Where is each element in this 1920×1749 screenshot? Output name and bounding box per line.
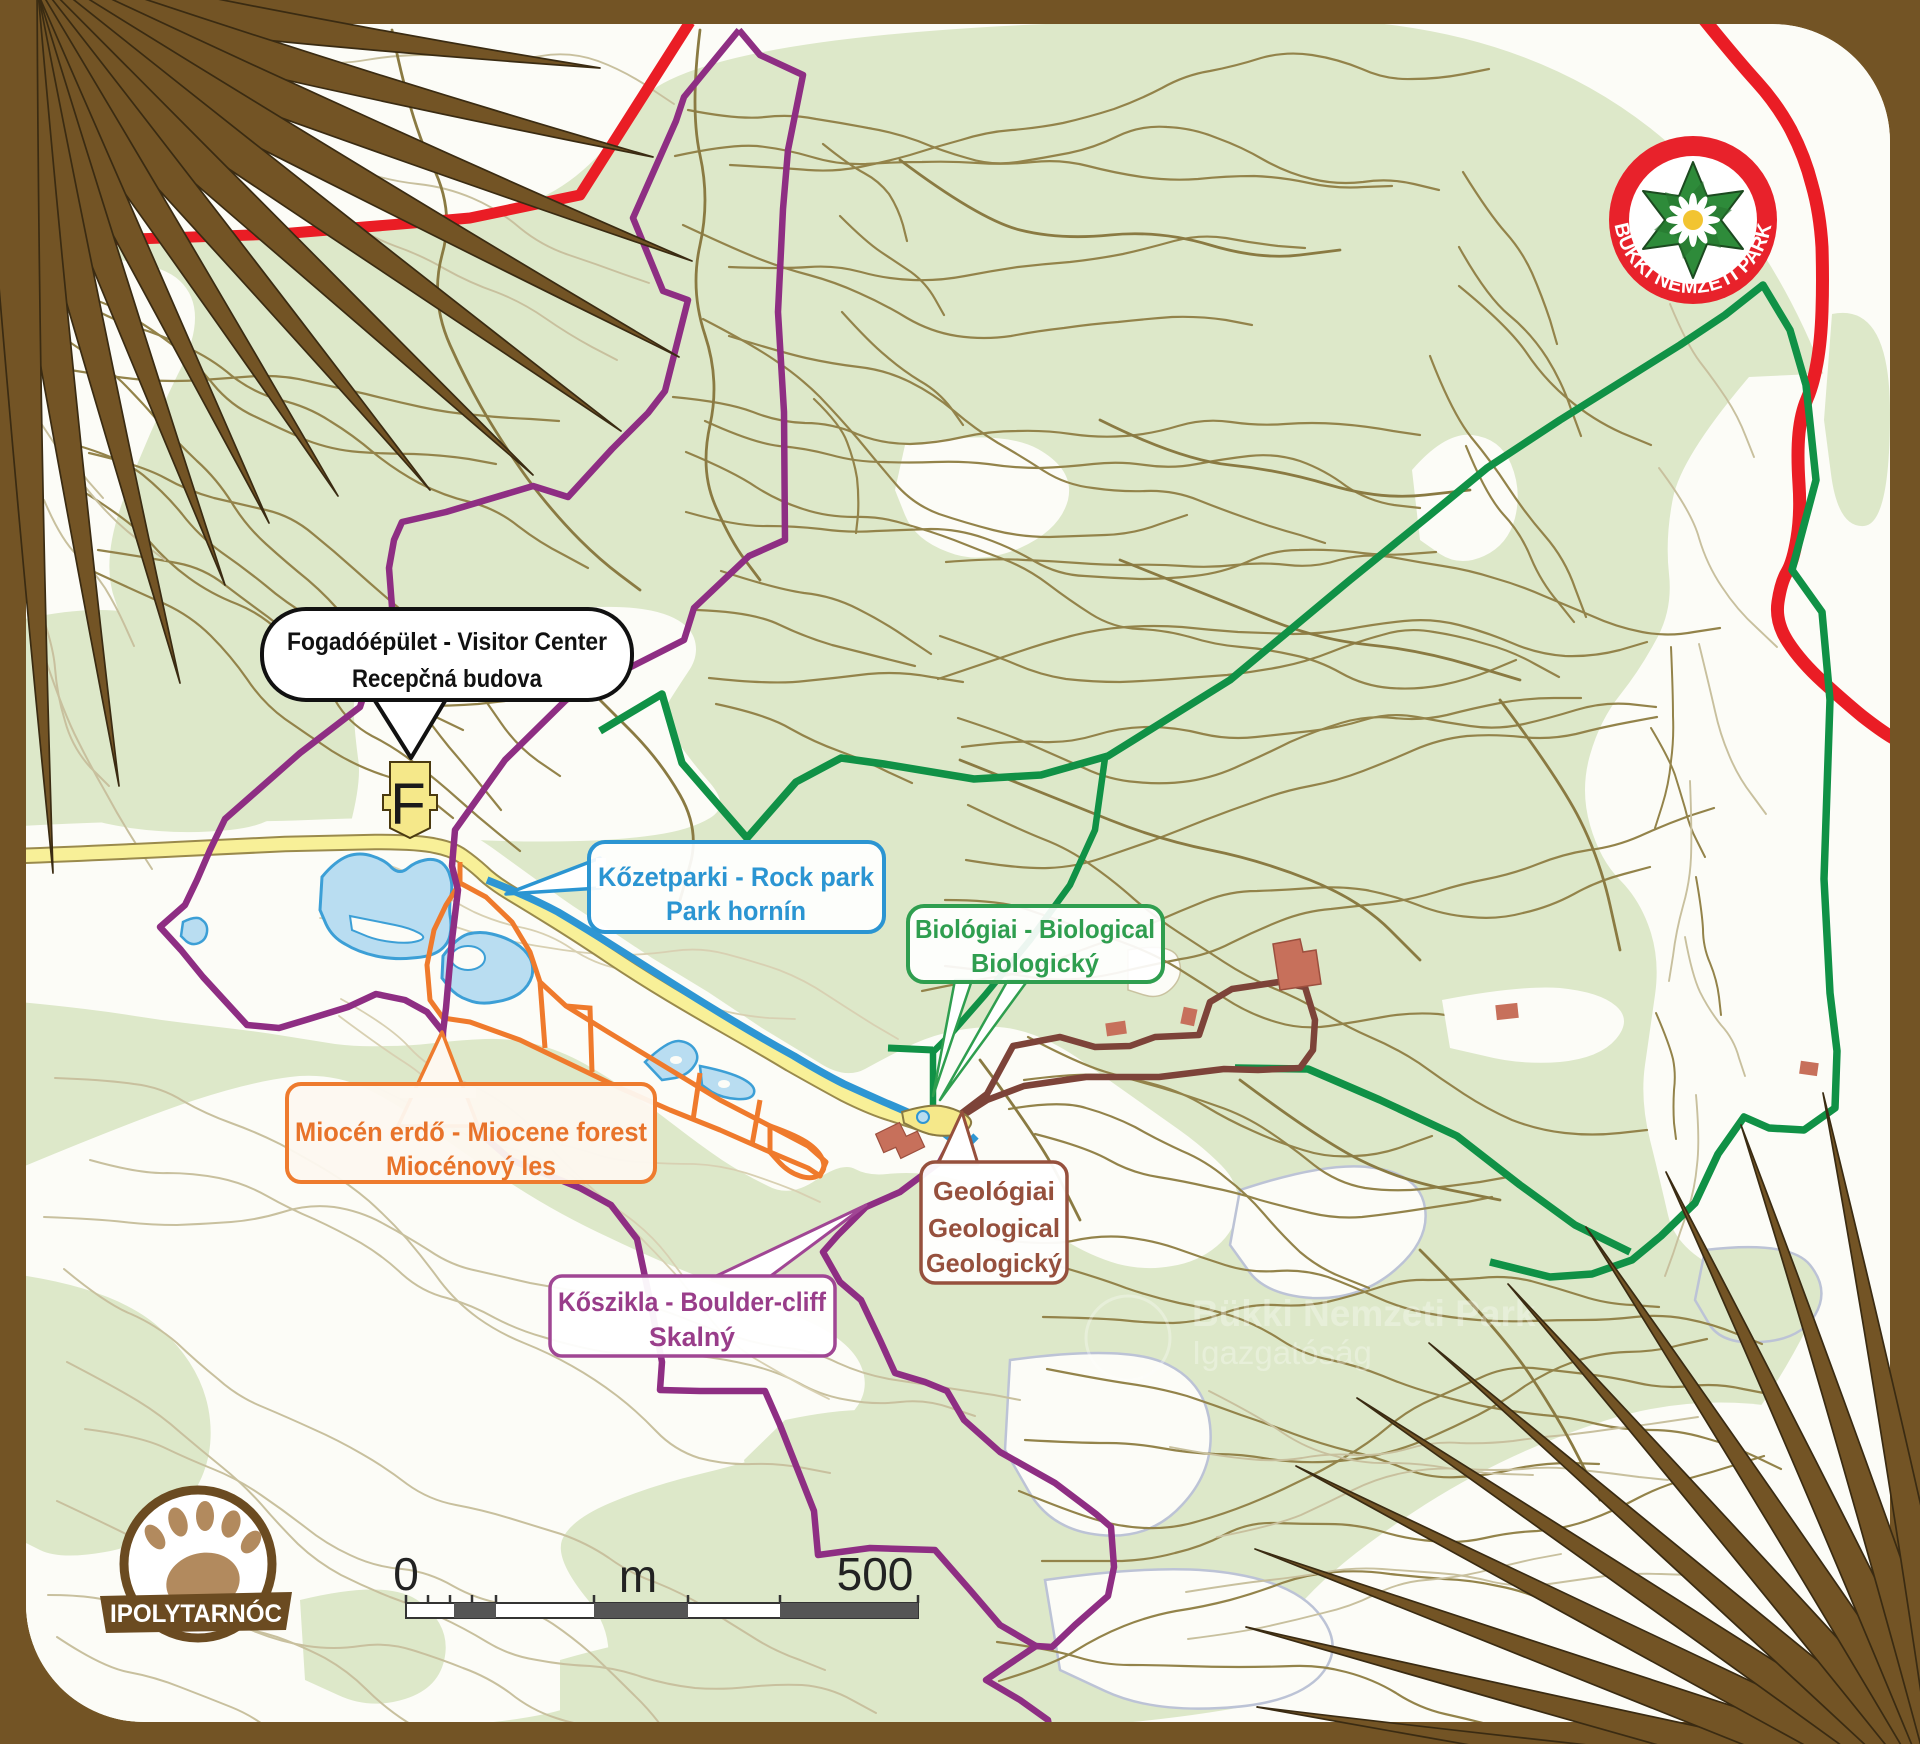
svg-text:Kőszikla - Boulder-cliff: Kőszikla - Boulder-cliff <box>558 1287 827 1317</box>
svg-text:Geologický: Geologický <box>926 1248 1063 1278</box>
svg-text:Bükki Nemzeti Park: Bükki Nemzeti Park <box>1192 1293 1536 1334</box>
svg-text:Fogadóépület - Visitor Center: Fogadóépület - Visitor Center <box>287 628 607 656</box>
svg-text:Miocén erdő - Miocene forest: Miocén erdő - Miocene forest <box>295 1117 647 1147</box>
svg-text:Kőzetparki - Rock park: Kőzetparki - Rock park <box>598 862 875 892</box>
svg-text:500: 500 <box>837 1548 914 1600</box>
svg-text:Skalný: Skalný <box>649 1322 735 1352</box>
svg-text:Park hornín: Park hornín <box>666 896 806 926</box>
svg-text:Miocénový les: Miocénový les <box>386 1151 556 1181</box>
svg-text:Igazgatóság: Igazgatóság <box>1192 1334 1372 1371</box>
svg-text:Biologický: Biologický <box>971 948 1100 978</box>
svg-text:m: m <box>619 1550 657 1602</box>
svg-text:Geological: Geological <box>928 1213 1060 1243</box>
svg-text:Geológiai: Geológiai <box>933 1176 1055 1206</box>
svg-text:0: 0 <box>393 1548 419 1600</box>
svg-text:Recepčná budova: Recepčná budova <box>352 665 543 693</box>
svg-text:F: F <box>390 772 425 837</box>
svg-text:Biológiai - Biological: Biológiai - Biological <box>915 914 1155 944</box>
svg-text:IPOLYTARNÓC: IPOLYTARNÓC <box>110 1598 282 1628</box>
